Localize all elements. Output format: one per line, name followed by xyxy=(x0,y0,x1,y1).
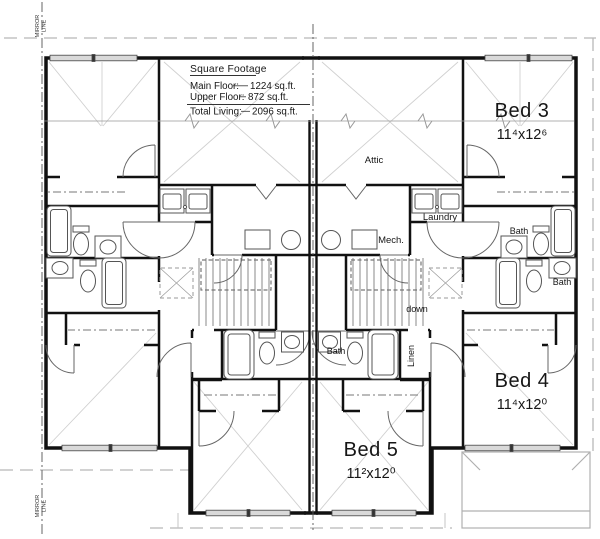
bath-label-lower: Bath xyxy=(553,277,572,287)
total-living-label: Total Living: xyxy=(190,107,242,118)
mirror-line-label-top-word1: MIRROR xyxy=(35,15,41,38)
down-label: down xyxy=(406,304,428,314)
mech-label: Mech. xyxy=(378,235,404,246)
total-living-value: 2096 sq.ft. xyxy=(252,107,298,118)
main-floor-value: 1224 sq.ft. xyxy=(250,81,296,92)
bed3-name: Bed 3 xyxy=(495,100,550,122)
laundry-label: Laundry xyxy=(423,212,458,223)
bed4-dims: 11⁴x12⁰ xyxy=(497,397,548,413)
floor-plan-page: MIRROR LINE MIRROR LINE Square Footage M… xyxy=(0,0,600,539)
upper-floor-value: 872 sq.ft. xyxy=(248,92,288,103)
bath-label-center: Bath xyxy=(327,346,346,356)
mirror-line-label-bottom-word1: MIRROR xyxy=(35,495,41,518)
square-footage-heading: Square Footage xyxy=(190,64,267,75)
main-floor-label: Main Floor: xyxy=(190,81,239,92)
bed5-dims: 11²x12⁰ xyxy=(346,466,395,482)
mirror-line-label-bottom-word2: LINE xyxy=(42,500,48,513)
bed3-dims: 11⁴x12⁶ xyxy=(497,127,548,143)
floor-plan-drawing: MIRROR LINE MIRROR LINE Square Footage M… xyxy=(0,0,600,539)
bed5-name: Bed 5 xyxy=(344,439,399,461)
linen-label: Linen xyxy=(406,345,416,367)
bed4-name: Bed 4 xyxy=(495,370,550,392)
bath-label-upper: Bath xyxy=(510,226,529,236)
attic-label: Attic xyxy=(365,155,384,166)
upper-floor-label: Upper Floor: xyxy=(190,92,244,103)
mirror-line-label-top-word2: LINE xyxy=(42,20,48,33)
